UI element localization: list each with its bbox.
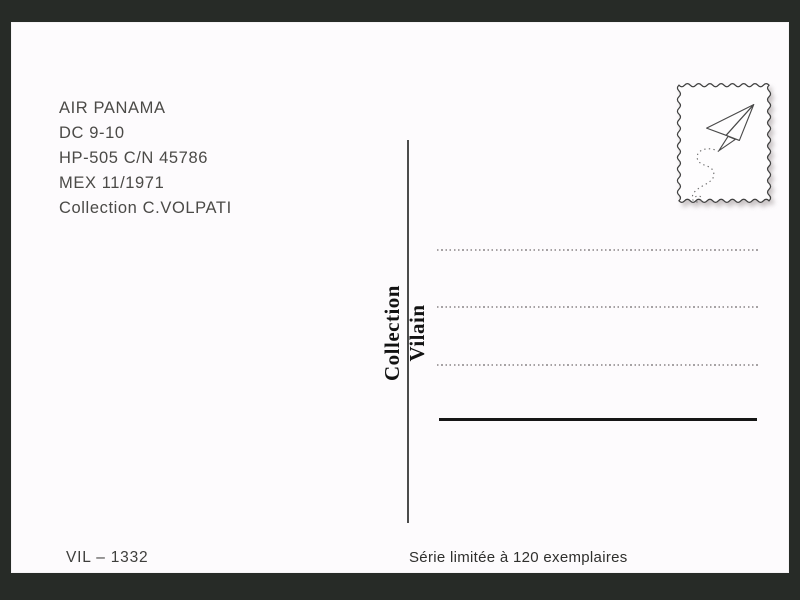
catalog-number: VIL – 1332 [66,549,148,567]
info-line-registration: HP-505 C/N 45786 [59,146,232,171]
info-line-airline: AIR PANAMA [59,96,232,121]
photo-frame: AIR PANAMA DC 9-10 HP-505 C/N 45786 MEX … [0,0,800,600]
stamp-box [671,78,777,208]
info-line-place-date: MEX 11/1971 [59,171,232,196]
address-line-3 [437,364,758,366]
postcard-back: AIR PANAMA DC 9-10 HP-505 C/N 45786 MEX … [11,22,789,573]
address-line-1 [437,249,758,251]
info-line-photo-credit: Collection C.VOLPATI [59,196,232,221]
info-line-aircraft-type: DC 9-10 [59,121,232,146]
signature-line [439,418,757,421]
address-line-2 [437,306,758,308]
aircraft-info-block: AIR PANAMA DC 9-10 HP-505 C/N 45786 MEX … [59,96,232,221]
publisher-vertical-text: Collection Vilain [380,258,404,408]
edition-note: Série limitée à 120 exemplaires [409,549,628,566]
